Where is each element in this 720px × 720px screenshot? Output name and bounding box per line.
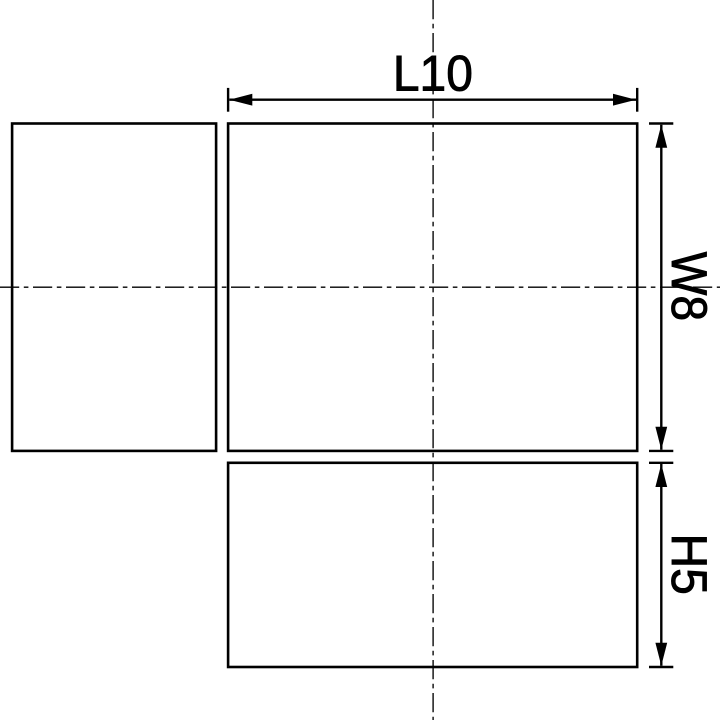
svg-text:L10: L10 — [393, 45, 473, 101]
svg-text:H5: H5 — [661, 533, 717, 595]
svg-text:W8: W8 — [661, 252, 717, 321]
